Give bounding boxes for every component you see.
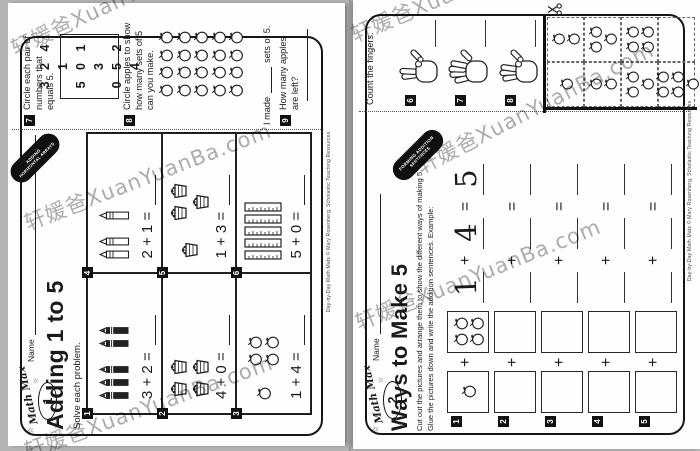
apple-icon bbox=[247, 335, 262, 350]
object-group bbox=[244, 203, 282, 261]
finger-answer-line bbox=[535, 20, 536, 47]
glued-apples bbox=[461, 375, 476, 409]
ruler-icon bbox=[244, 203, 282, 213]
object-group bbox=[99, 364, 130, 401]
sentence-blank bbox=[577, 272, 578, 303]
number-grid-row: 5 0 1 3 bbox=[72, 35, 108, 98]
equals-sign: = bbox=[598, 202, 616, 211]
scissors-icon bbox=[547, 3, 567, 16]
apple-icon bbox=[469, 317, 484, 332]
plus-sign: + bbox=[551, 358, 569, 367]
section-9-text-line: are left? bbox=[290, 37, 302, 110]
apple-icon bbox=[685, 78, 699, 92]
glue-box-1 bbox=[447, 371, 489, 413]
answer-blank-line bbox=[262, 67, 272, 93]
glue-box-1 bbox=[588, 371, 630, 413]
sentence-blank bbox=[577, 164, 578, 195]
addition-sentence-row: 5++= bbox=[633, 127, 679, 427]
apple-icon bbox=[211, 31, 226, 46]
apple-icon bbox=[176, 31, 191, 46]
apple-icon bbox=[670, 85, 684, 99]
sentence-blank: 5 bbox=[483, 164, 484, 195]
section-8-text-line: how many sets of 5 bbox=[134, 23, 146, 110]
apple-icon bbox=[176, 48, 191, 63]
section-9-text: How many apples are left? bbox=[278, 37, 301, 110]
object-group bbox=[99, 211, 130, 222]
apple-icon bbox=[588, 25, 602, 39]
object-group bbox=[256, 386, 271, 401]
section-9-answer-line bbox=[307, 29, 308, 101]
name-label: Name bbox=[26, 339, 36, 362]
problem-equation: 1 + 3 = bbox=[213, 175, 230, 259]
crayon-icon bbox=[99, 237, 130, 248]
addition-sentence-row: 3++= bbox=[539, 127, 585, 427]
glue-box-2 bbox=[494, 311, 536, 353]
object-group bbox=[168, 180, 210, 226]
sentence-blank bbox=[624, 272, 625, 303]
i-made-sentence: I made sets of 5. bbox=[262, 26, 272, 125]
i-made-suffix: sets of 5. bbox=[262, 26, 272, 63]
apple-icon bbox=[193, 48, 208, 63]
scanned-worksheets-view: { "watermark": { "text": "轩媛爸XuanYuanBa.… bbox=[0, 0, 700, 451]
problem-number-badge: 6 bbox=[231, 268, 242, 279]
crayon-icon bbox=[99, 250, 130, 261]
number-pairs-box: 3 2 4 15 0 1 30 5 2 4 bbox=[60, 34, 119, 99]
apple-icon bbox=[640, 78, 654, 92]
apple-icon bbox=[158, 83, 173, 98]
ruler-icon bbox=[244, 239, 282, 249]
star-icon: ☆ bbox=[371, 426, 380, 433]
right-page-rotated-content: ☆ Math Max 2 ☆ ☆ Name Ways to Make 5 Cut… bbox=[353, 0, 700, 449]
sentence-blank bbox=[671, 164, 672, 195]
equals-sign: = bbox=[645, 202, 663, 211]
handwritten-digit: 4 bbox=[449, 223, 484, 243]
equation-answer-blank bbox=[292, 175, 305, 205]
equation-answer-blank bbox=[217, 175, 230, 205]
crayon-icon bbox=[99, 211, 130, 222]
copyright-text: Day-by-Day Math Mats © Mary Rosenberg, S… bbox=[687, 101, 693, 281]
handwritten-digit: 5 bbox=[449, 169, 484, 189]
section-7-badge: 7 bbox=[24, 115, 35, 126]
plus-sign: + bbox=[645, 358, 663, 367]
apple-icon bbox=[551, 33, 565, 47]
finger-answer-line bbox=[485, 20, 486, 47]
glue-box-2 bbox=[635, 311, 677, 353]
basket-icon bbox=[168, 357, 188, 377]
apple-icon bbox=[566, 33, 580, 47]
cutout-piece bbox=[658, 17, 695, 62]
apple-icon bbox=[193, 83, 208, 98]
plus-sign: + bbox=[504, 358, 522, 367]
hand-3-fingers-icon bbox=[497, 49, 539, 93]
glued-apples bbox=[453, 315, 484, 349]
problem-equation: 1 + 4 = bbox=[288, 315, 305, 399]
book-gutter-shadow bbox=[349, 0, 351, 451]
finger-section-badge: 6 bbox=[405, 95, 416, 106]
apple-icon bbox=[158, 48, 173, 63]
basket-icon bbox=[168, 204, 188, 224]
ruler-icon bbox=[244, 251, 282, 261]
apple-icon bbox=[461, 385, 476, 400]
apple-icon bbox=[603, 33, 617, 47]
problem-equation: 3 + 2 = bbox=[139, 315, 156, 399]
problem-pictures bbox=[240, 137, 286, 261]
section-9-badge: 9 bbox=[280, 115, 291, 126]
instruction-line-2: Glue the pictures down and write the add… bbox=[426, 206, 435, 431]
equation-text: 2 + 1 = bbox=[139, 212, 156, 259]
apple-icon bbox=[670, 70, 684, 84]
plus-sign: + bbox=[598, 358, 616, 367]
apple-icon bbox=[453, 333, 468, 348]
sentence-blank bbox=[624, 164, 625, 195]
apples-to-circle-grid bbox=[158, 26, 243, 98]
right-worksheet-page: ☆ Math Max 2 ☆ ☆ Name Ways to Make 5 Cut… bbox=[353, 0, 700, 449]
basket-icon bbox=[179, 241, 199, 261]
row-number-badge: 4 bbox=[592, 416, 603, 427]
row-number-badge: 3 bbox=[545, 416, 556, 427]
apple-icon bbox=[193, 66, 208, 81]
apple-icon bbox=[453, 317, 468, 332]
problem-pictures bbox=[91, 278, 137, 402]
hand-drawing bbox=[497, 49, 544, 93]
apple-icon bbox=[211, 66, 226, 81]
equation-answer-blank bbox=[143, 315, 156, 345]
row-number-badge: 2 bbox=[498, 416, 509, 427]
equation-text: 1 + 4 = bbox=[288, 352, 305, 399]
basket-icon bbox=[168, 182, 188, 202]
sentence-blank bbox=[671, 272, 672, 303]
problem-cell: 31 + 4 = bbox=[236, 274, 311, 415]
glue-box-1 bbox=[541, 371, 583, 413]
crayon-icon bbox=[99, 338, 130, 349]
star-icon: ☆ bbox=[377, 377, 385, 383]
apple-icon bbox=[176, 66, 191, 81]
problem-equation: 5 + 0 = bbox=[288, 175, 305, 259]
apple-icon bbox=[158, 66, 173, 81]
problem-number-badge: 3 bbox=[231, 408, 242, 419]
apple-icon bbox=[211, 48, 226, 63]
glue-box-1 bbox=[635, 371, 677, 413]
section-8-text-line: can you make. bbox=[145, 23, 157, 110]
crayon-icon bbox=[99, 364, 130, 375]
apple-icon bbox=[655, 85, 669, 99]
row-number-badge: 5 bbox=[639, 416, 650, 427]
equation-answer-blank bbox=[217, 315, 230, 345]
cutout-apples bbox=[551, 32, 580, 48]
equals-sign: = bbox=[504, 202, 522, 211]
crayon-icon bbox=[99, 377, 130, 388]
object-group bbox=[99, 325, 130, 349]
apple-icon bbox=[193, 31, 208, 46]
hand-drawing bbox=[397, 49, 444, 93]
equation-answer-blank bbox=[292, 315, 305, 345]
apple-icon bbox=[625, 85, 639, 99]
apple-icon bbox=[228, 48, 243, 63]
object-group bbox=[179, 241, 199, 261]
name-field: Name bbox=[371, 194, 381, 361]
sentence-blank bbox=[530, 164, 531, 195]
glue-box-1 bbox=[494, 371, 536, 413]
apple-icon bbox=[211, 83, 226, 98]
apple-icon bbox=[256, 386, 271, 401]
apple-icon bbox=[228, 66, 243, 81]
problem-number-badge: 5 bbox=[157, 268, 168, 279]
finger-section-badge: 7 bbox=[455, 95, 466, 106]
equals-sign: = bbox=[457, 202, 475, 211]
apple-icon bbox=[655, 70, 669, 84]
apple-icon bbox=[469, 333, 484, 348]
sentence-blank bbox=[530, 272, 531, 303]
equation-text: 1 + 3 = bbox=[213, 212, 230, 259]
problem-cell: 65 + 0 = bbox=[236, 133, 311, 274]
cutout-piece bbox=[547, 17, 584, 62]
name-label: Name bbox=[371, 338, 381, 361]
sentence-blank: 4 bbox=[483, 218, 484, 249]
scissors-icon bbox=[547, 3, 562, 16]
apple-icon bbox=[228, 31, 243, 46]
apple-icon bbox=[625, 25, 639, 39]
hand-5-fingers-icon bbox=[447, 49, 489, 93]
plus-sign: + bbox=[457, 358, 475, 367]
glue-box-2 bbox=[447, 311, 489, 353]
page-title: Adding 1 to 5 bbox=[42, 280, 69, 430]
section-8-text: Circle apples to show how many sets of 5… bbox=[122, 23, 157, 110]
equals-sign: = bbox=[551, 202, 569, 211]
hand-drawing bbox=[447, 49, 494, 93]
row-number-badge: 1 bbox=[451, 416, 462, 427]
object-group bbox=[99, 237, 130, 261]
star-icon: ☆ bbox=[32, 378, 40, 384]
ruler-icon bbox=[244, 227, 282, 237]
section-9-text-line: How many apples bbox=[278, 37, 290, 110]
addition-sentence-row: 4++= bbox=[586, 127, 632, 427]
section-8-text-line: Circle apples to show bbox=[122, 23, 134, 110]
apple-icon bbox=[158, 31, 173, 46]
ruler-icon bbox=[244, 215, 282, 225]
basket-icon bbox=[190, 193, 210, 213]
copyright-text: Day-by-Day Math Mats © Mary Rosenberg, S… bbox=[326, 132, 332, 312]
apple-icon bbox=[228, 83, 243, 98]
hand-2-fingers-icon bbox=[397, 49, 439, 93]
section-8-badge: 8 bbox=[124, 115, 135, 126]
apple-icon bbox=[176, 83, 191, 98]
plus-sign: + bbox=[598, 256, 616, 265]
plus-sign: + bbox=[645, 256, 663, 265]
glue-box-2 bbox=[588, 311, 630, 353]
sentence-blank bbox=[624, 218, 625, 249]
apple-icon bbox=[588, 40, 602, 54]
cutout-apples bbox=[655, 63, 699, 106]
problem-number-badge: 4 bbox=[82, 268, 93, 279]
sentence-blank bbox=[671, 218, 672, 249]
section-divider-dotted-line bbox=[12, 129, 321, 130]
finger-answer-line bbox=[435, 20, 436, 47]
crayon-icon bbox=[99, 325, 130, 336]
equation-text: 5 + 0 = bbox=[288, 212, 305, 259]
glue-box-2 bbox=[541, 311, 583, 353]
